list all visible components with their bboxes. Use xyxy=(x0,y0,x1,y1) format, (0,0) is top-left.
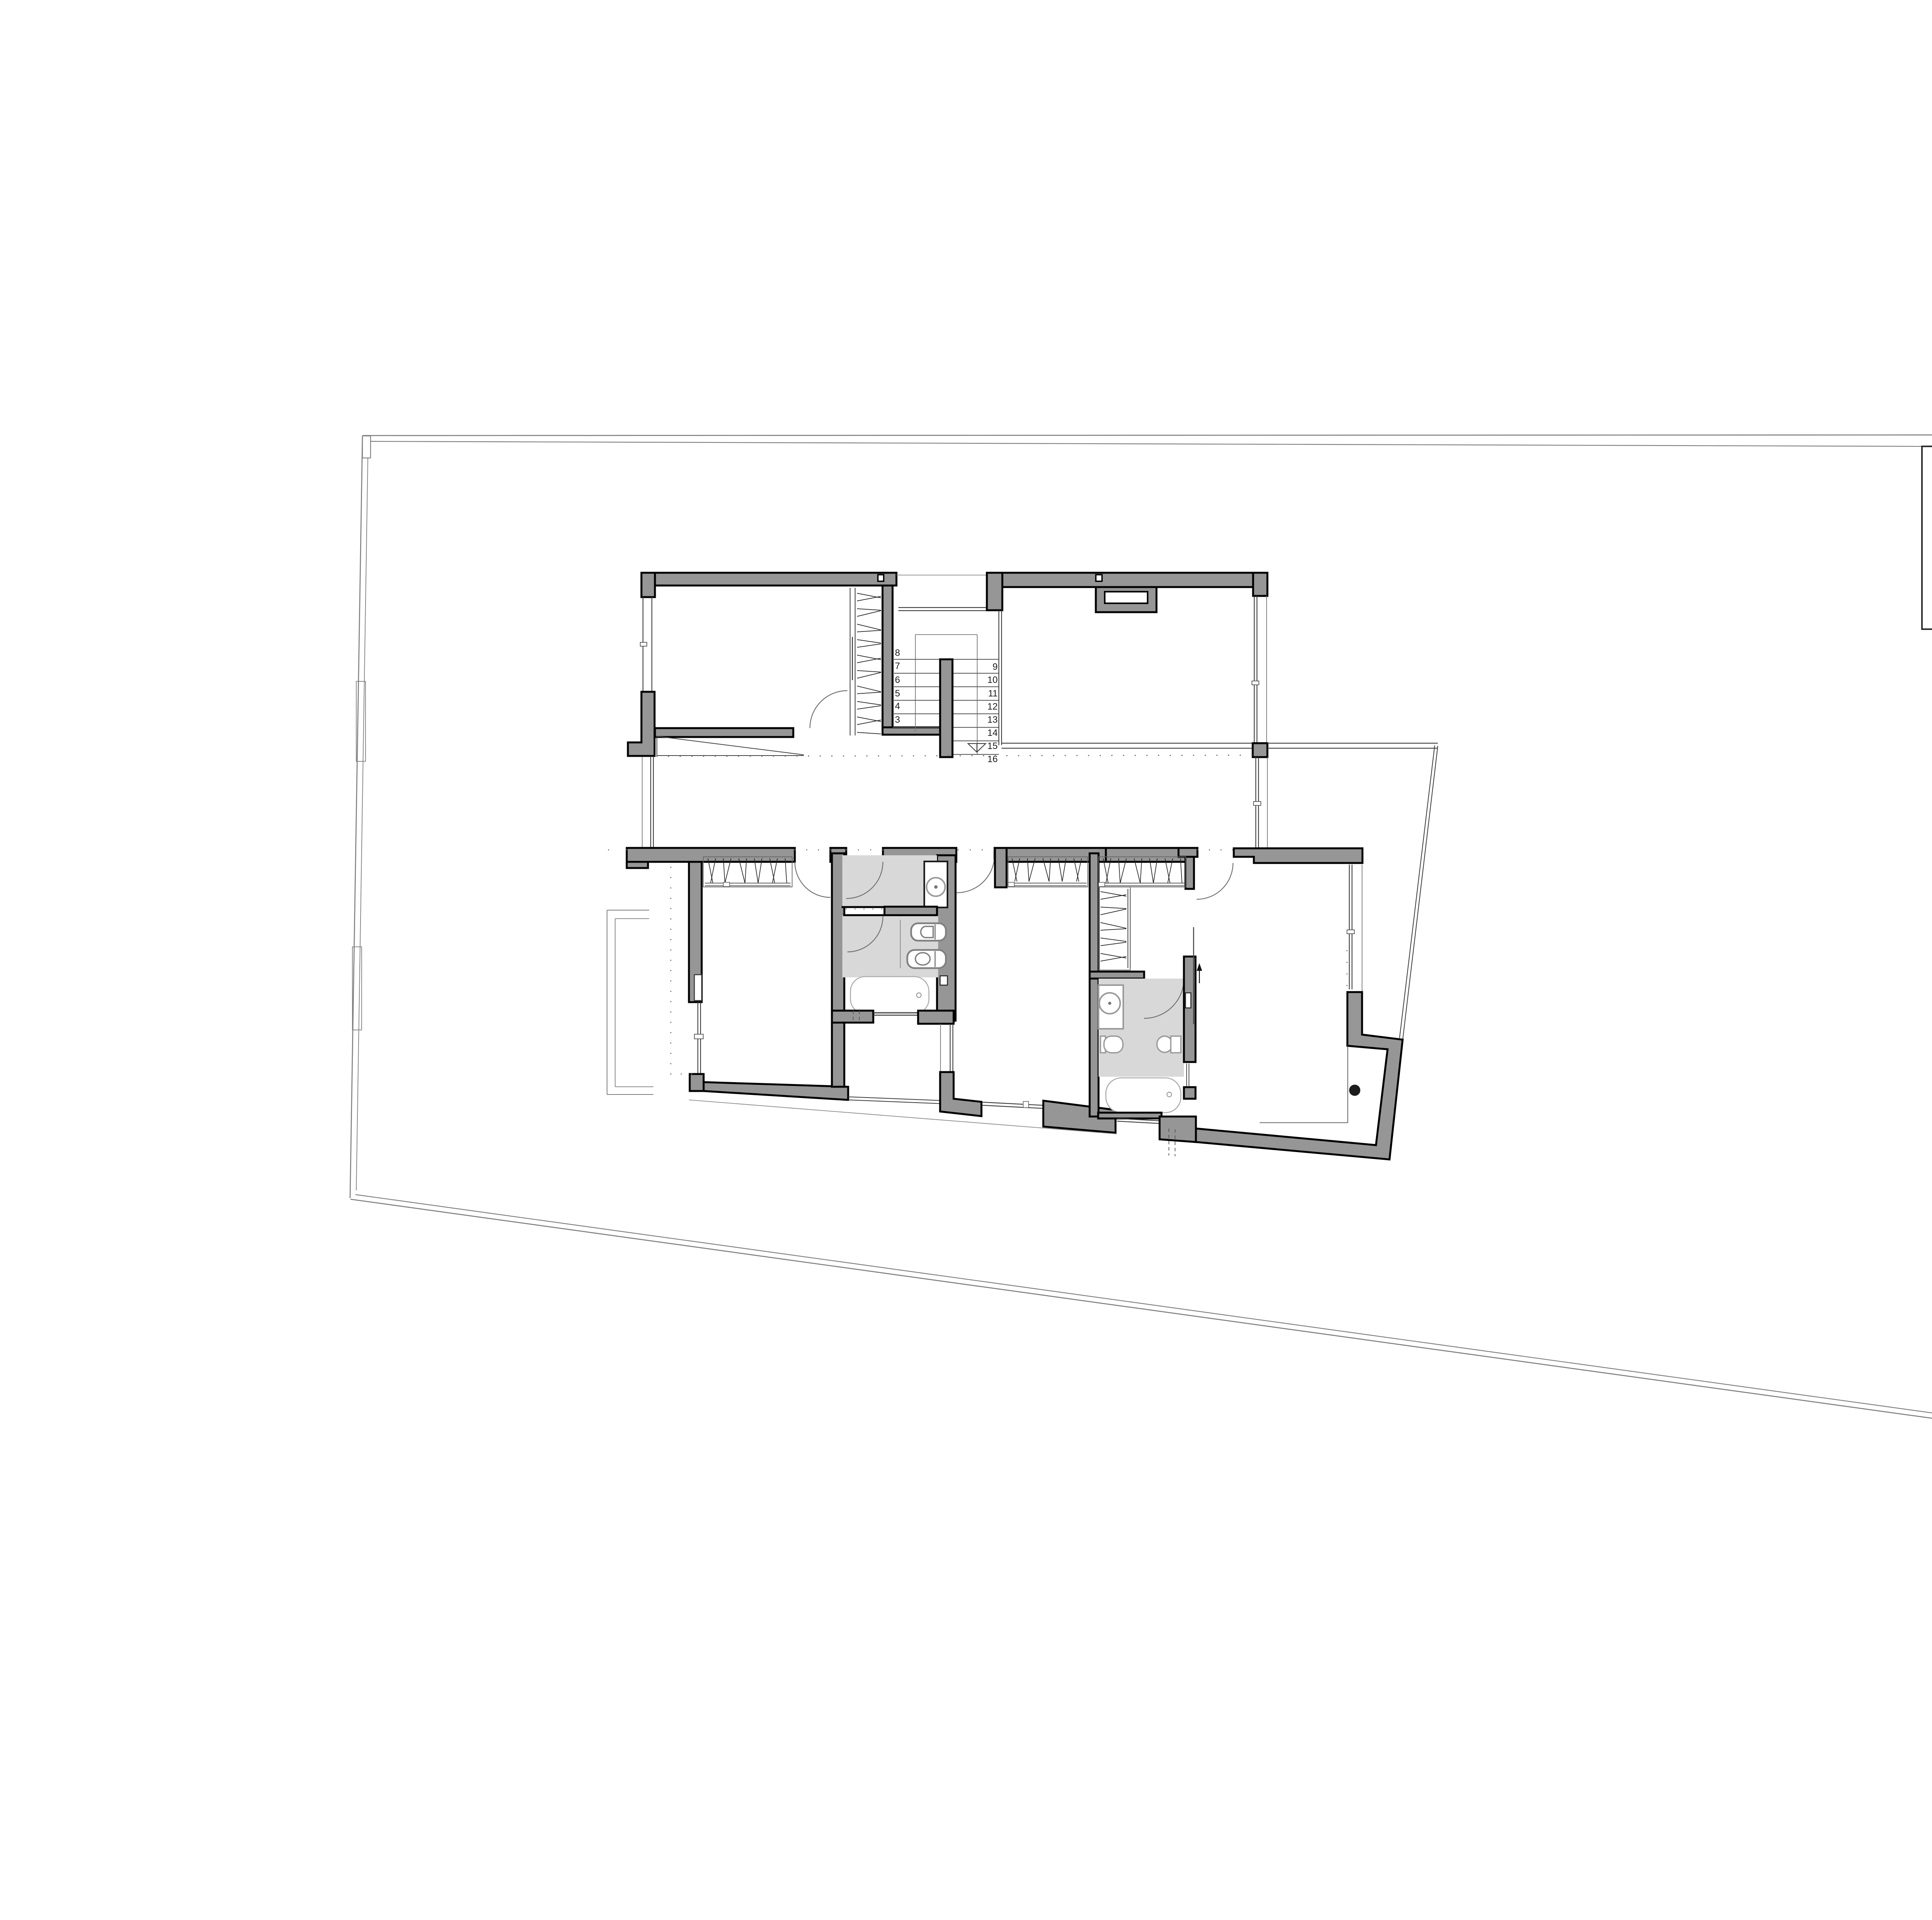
svg-text:14: 14 xyxy=(987,728,998,738)
svg-text:16: 16 xyxy=(987,754,998,764)
svg-text:5: 5 xyxy=(895,688,900,699)
svg-text:8: 8 xyxy=(895,648,900,658)
svg-text:10: 10 xyxy=(987,675,998,685)
svg-text:12: 12 xyxy=(987,701,998,712)
svg-text:9: 9 xyxy=(993,662,998,672)
svg-text:11: 11 xyxy=(988,688,998,699)
svg-text:13: 13 xyxy=(987,715,998,725)
svg-text:7: 7 xyxy=(895,661,900,671)
svg-text:3: 3 xyxy=(895,715,900,725)
svg-text:15: 15 xyxy=(987,741,998,751)
svg-text:6: 6 xyxy=(895,675,900,685)
svg-text:4: 4 xyxy=(895,701,900,711)
